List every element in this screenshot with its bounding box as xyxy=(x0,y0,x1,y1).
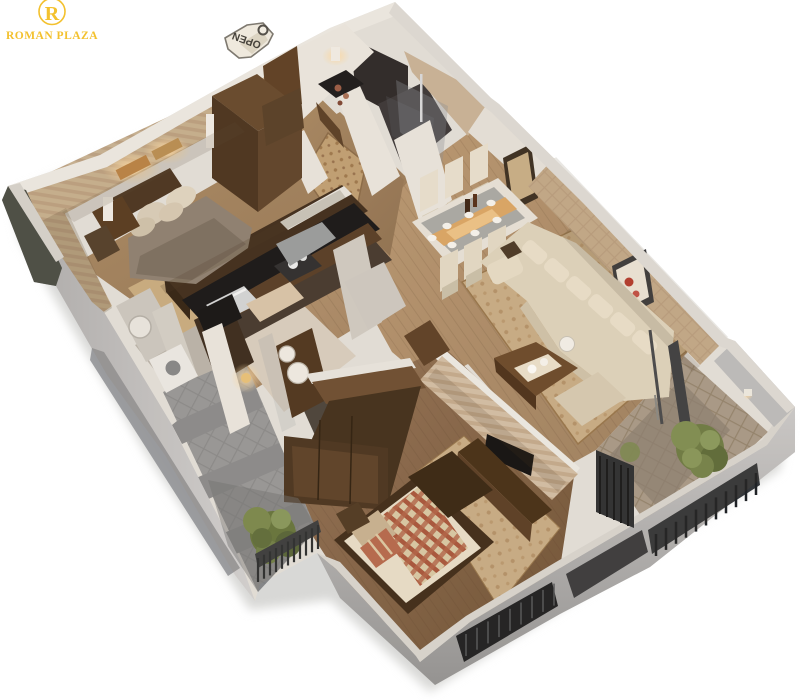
svg-text:R: R xyxy=(45,3,60,25)
svg-text:ROMAN PLAZA: ROMAN PLAZA xyxy=(6,30,98,42)
